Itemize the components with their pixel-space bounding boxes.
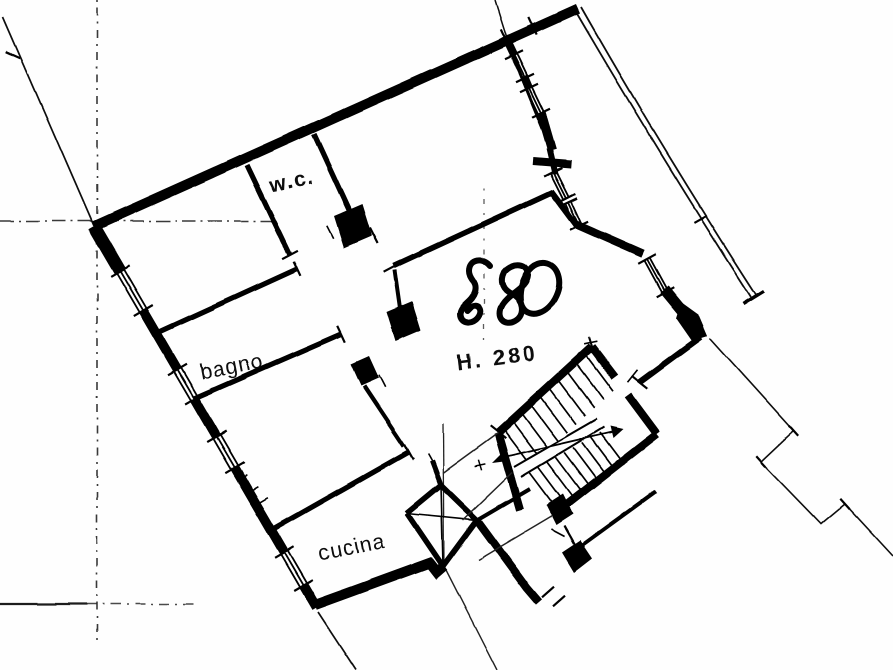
- svg-text:w.c.: w.c.: [266, 166, 316, 198]
- svg-text:bagno: bagno: [198, 348, 266, 384]
- svg-text:H. 280: H. 280: [455, 341, 539, 375]
- svg-text:cucina: cucina: [316, 529, 387, 566]
